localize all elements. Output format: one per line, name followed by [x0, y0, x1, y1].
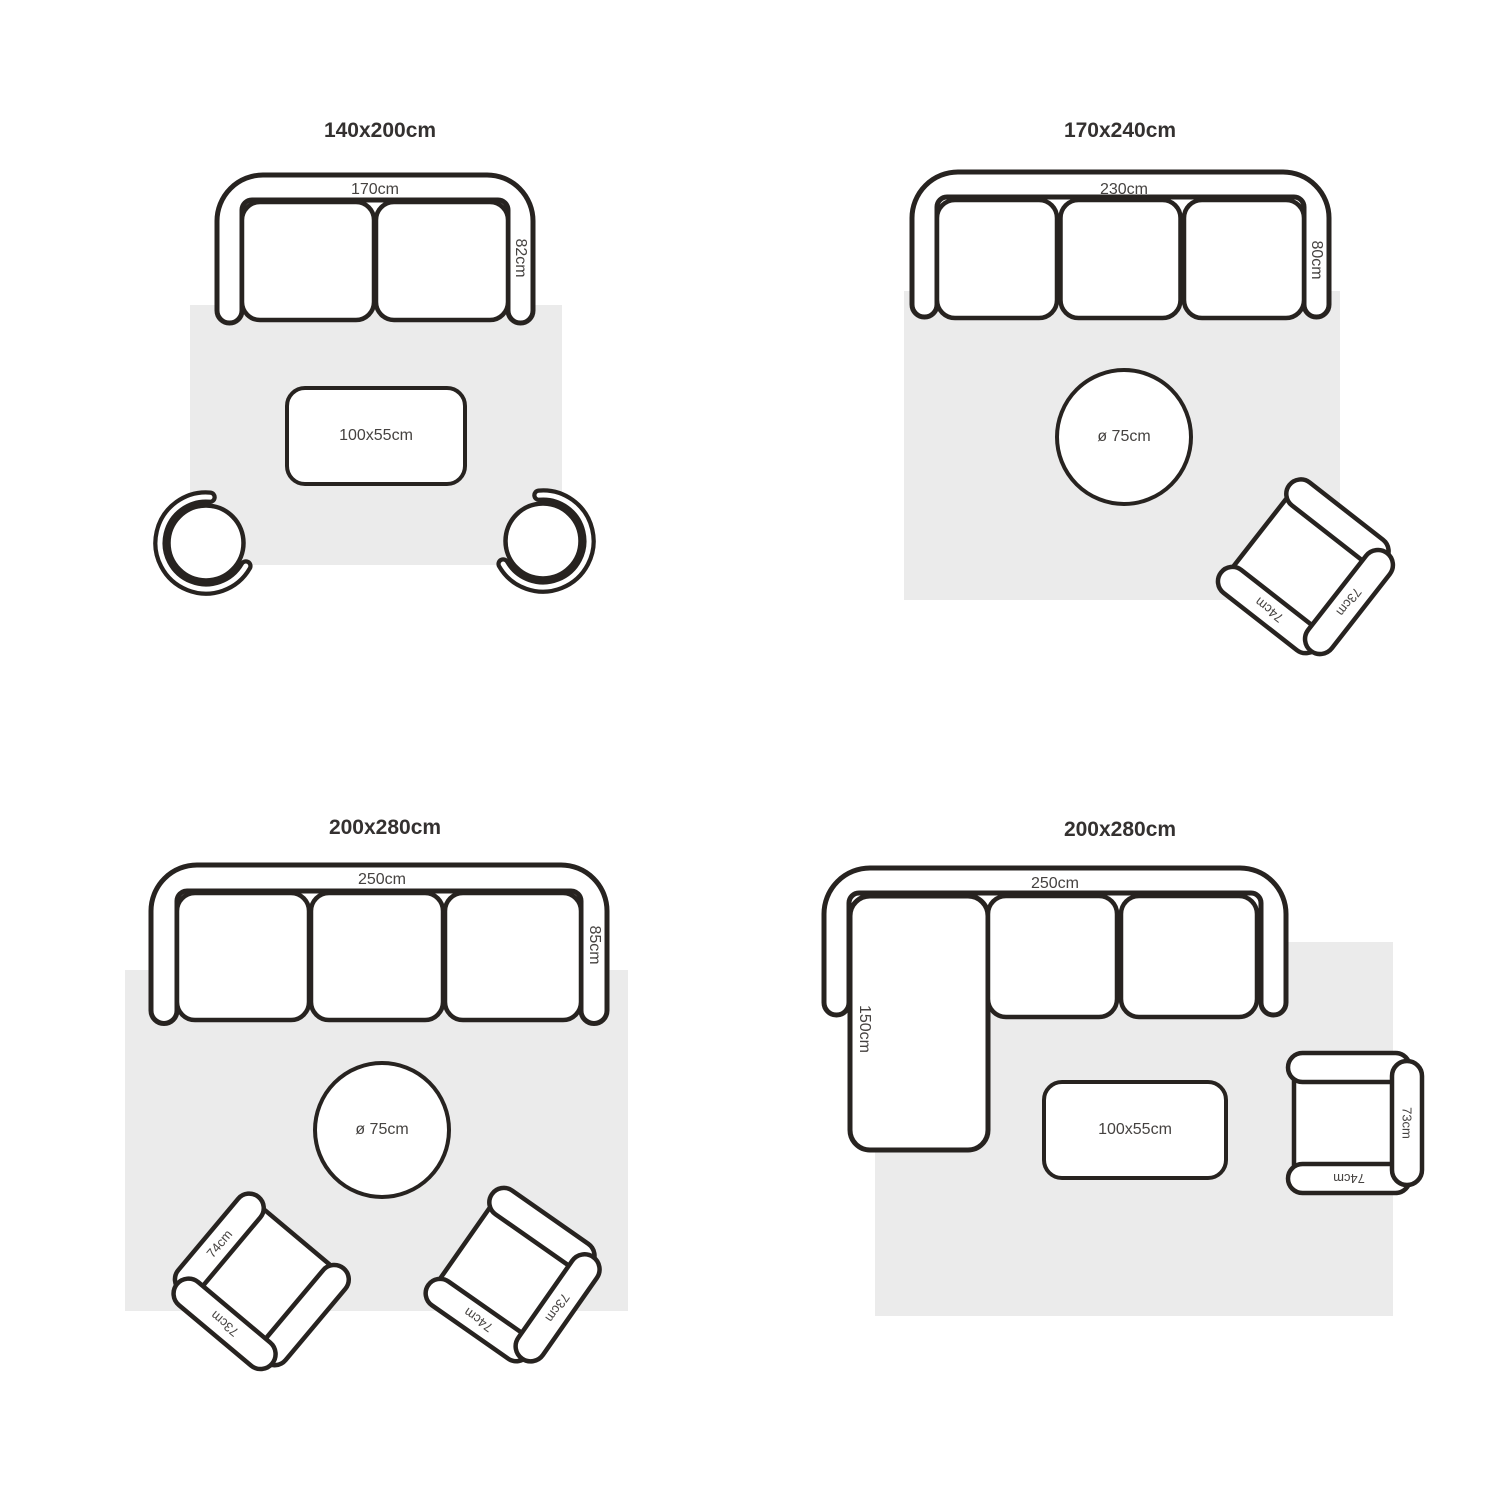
round-table-label: ø 75cm — [1097, 428, 1150, 446]
sofa-cushion — [1184, 200, 1304, 318]
sofa-cushion — [1121, 896, 1257, 1017]
sofa-cushion — [988, 896, 1117, 1017]
stool-seat — [506, 504, 581, 579]
armchair: 73cm 74cm — [1285, 1050, 1425, 1196]
coffee-table-label: 100x55cm — [339, 427, 413, 445]
coffee-table-label: 100x55cm — [1098, 1121, 1172, 1139]
round-table: ø 75cm — [313, 1061, 451, 1199]
round-table-label: ø 75cm — [355, 1121, 408, 1139]
sofa-width-label: 250cm — [1031, 875, 1079, 893]
coffee-table: 100x55cm — [1042, 1080, 1228, 1180]
sofa-chaise-label: 150cm — [855, 1005, 873, 1053]
sofa-depth-label: 82cm — [511, 238, 529, 277]
sofa-width-label: 230cm — [1100, 181, 1148, 199]
sofa-depth-label: 80cm — [1307, 240, 1325, 279]
coffee-table: 100x55cm — [285, 386, 467, 486]
diagram-title-q1: 140x200cm — [324, 119, 436, 143]
sofa-cushion — [376, 202, 508, 320]
sofa-cushion — [311, 893, 443, 1020]
stool-left — [146, 483, 266, 603]
diagram-title-q4: 200x280cm — [1064, 818, 1176, 842]
stool-seat — [169, 506, 244, 581]
sofa-cushion — [242, 202, 374, 320]
round-table: ø 75cm — [1055, 368, 1193, 506]
armchair-arm-label: 74cm — [1333, 1171, 1365, 1186]
sofa-depth-label: 85cm — [585, 925, 603, 964]
sofa-cushion — [1061, 200, 1181, 318]
armchair-back-label: 73cm — [1400, 1107, 1415, 1139]
sofa-width-label: 250cm — [358, 871, 406, 889]
diagram-title-q2: 170x240cm — [1064, 119, 1176, 143]
sofa-cushion — [445, 893, 581, 1020]
rug-size-guide: 140x200cm 170cm 82cm 100x55cm 170x240cm … — [0, 0, 1500, 1500]
sofa-cushion — [937, 200, 1057, 318]
diagram-title-q3: 200x280cm — [329, 816, 441, 840]
sofa-cushion — [177, 893, 309, 1020]
sofa-width-label: 170cm — [351, 181, 399, 199]
stool-right — [483, 481, 603, 601]
